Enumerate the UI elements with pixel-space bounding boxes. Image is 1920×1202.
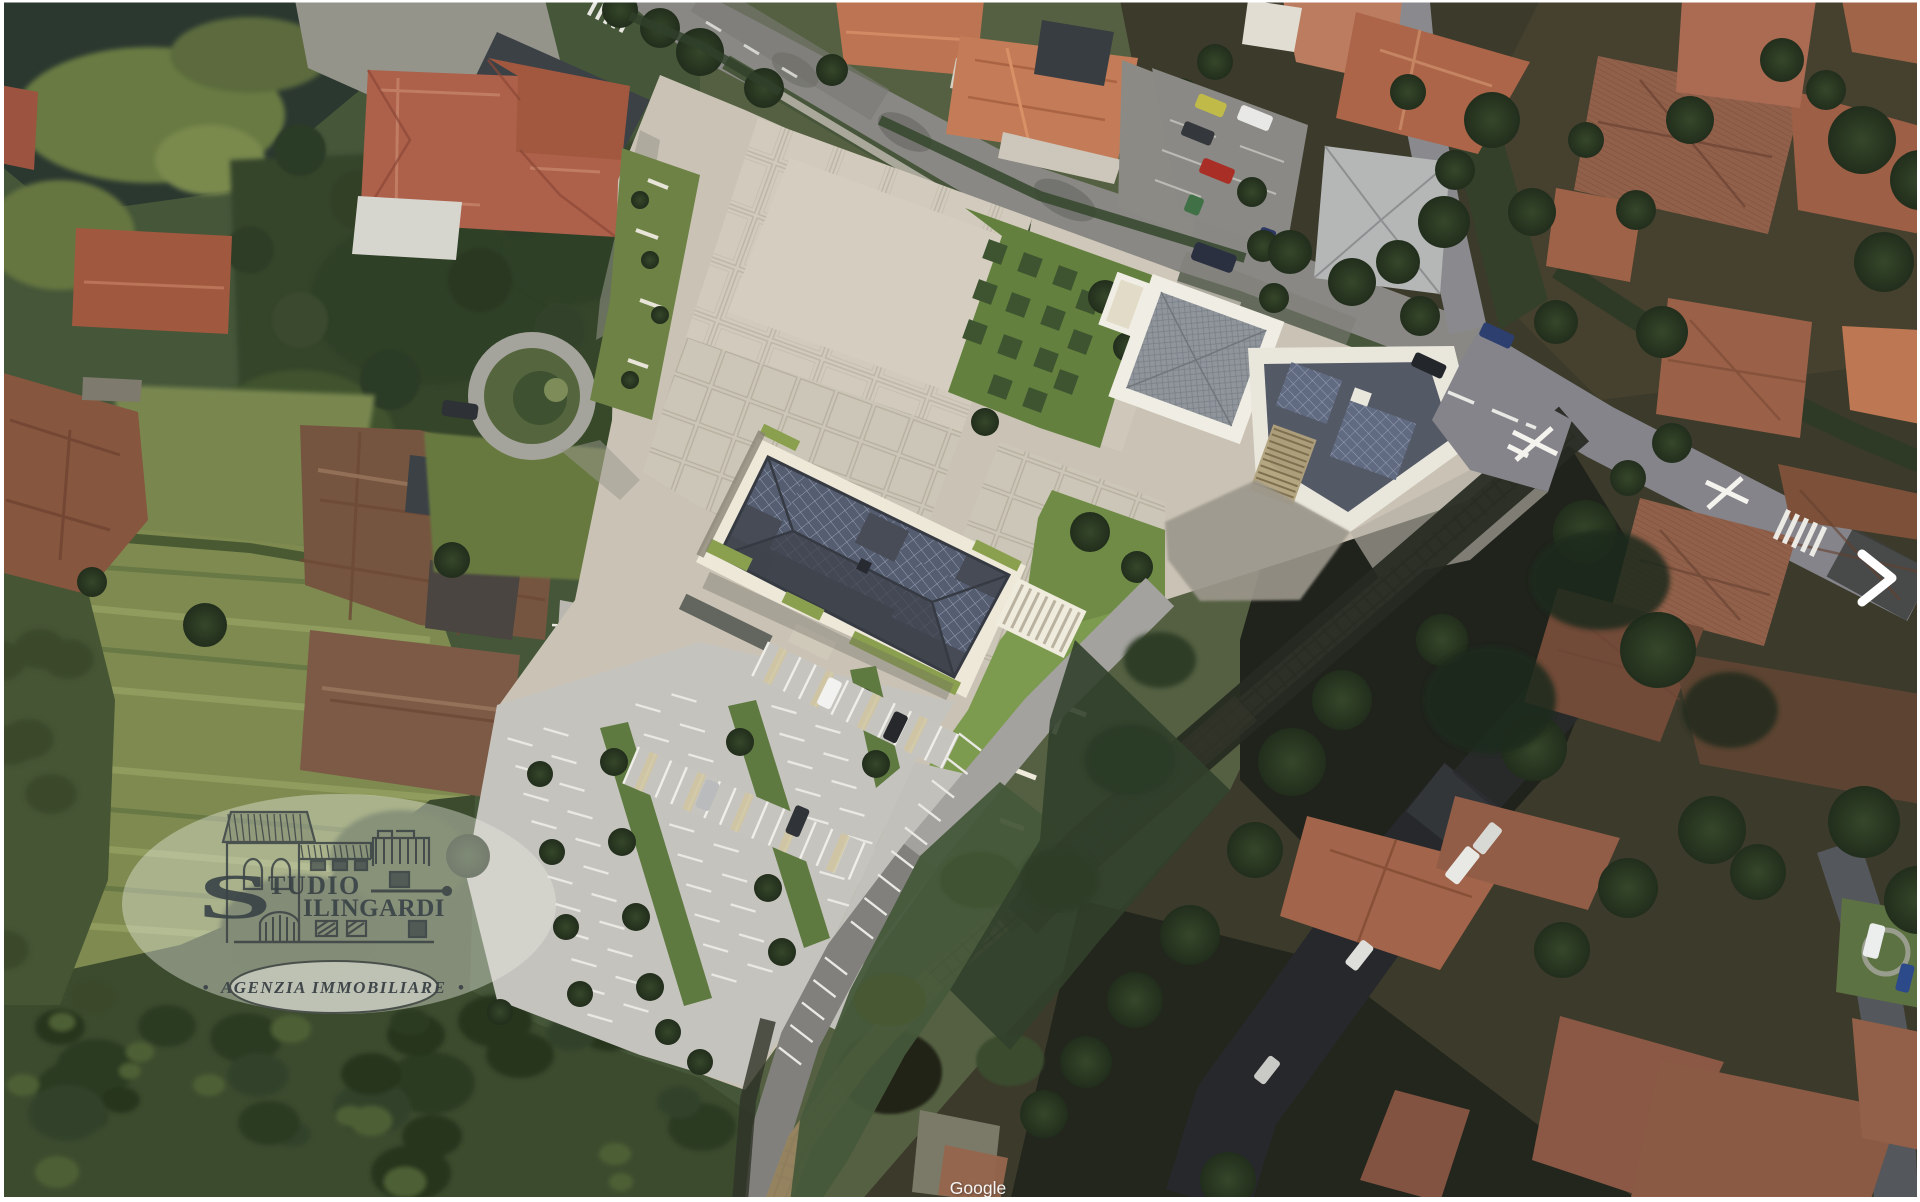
svg-text:S: S	[197, 861, 272, 932]
svg-text:• AGENZIA IMMOBILIARE •: • AGENZIA IMMOBILIARE •	[203, 978, 466, 997]
svg-text:ILINGARDI: ILINGARDI	[303, 895, 445, 922]
svg-text:Google: Google	[950, 1178, 1006, 1198]
